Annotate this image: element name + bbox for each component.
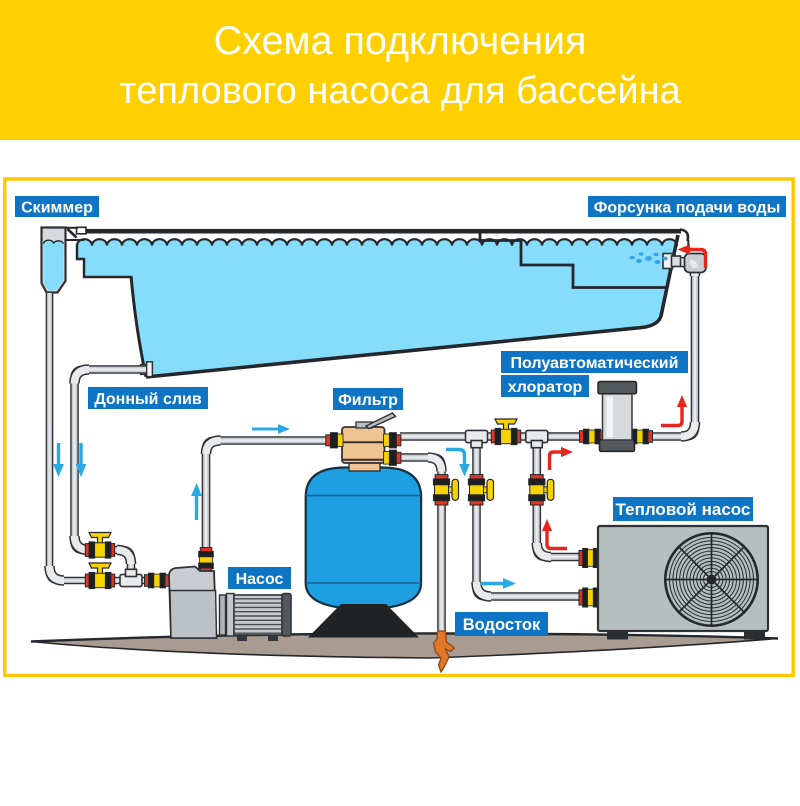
- svg-text:Насос: Насос: [236, 571, 284, 588]
- svg-text:хлоратор: хлоратор: [508, 379, 583, 396]
- svg-text:Фильтр: Фильтр: [338, 392, 398, 409]
- svg-text:Форсунка подачи воды: Форсунка подачи воды: [594, 199, 780, 216]
- svg-text:Водосток: Водосток: [463, 616, 541, 634]
- svg-text:Схема подключения: Схема подключения: [214, 19, 587, 63]
- svg-text:Донный слив: Донный слив: [94, 391, 202, 408]
- svg-text:теплового насоса для бассейна: теплового насоса для бассейна: [119, 70, 681, 112]
- svg-text:Скиммер: Скиммер: [21, 199, 93, 216]
- svg-text:Тепловой насос: Тепловой насос: [616, 500, 751, 519]
- svg-text:Полуавтоматический: Полуавтоматический: [511, 355, 679, 372]
